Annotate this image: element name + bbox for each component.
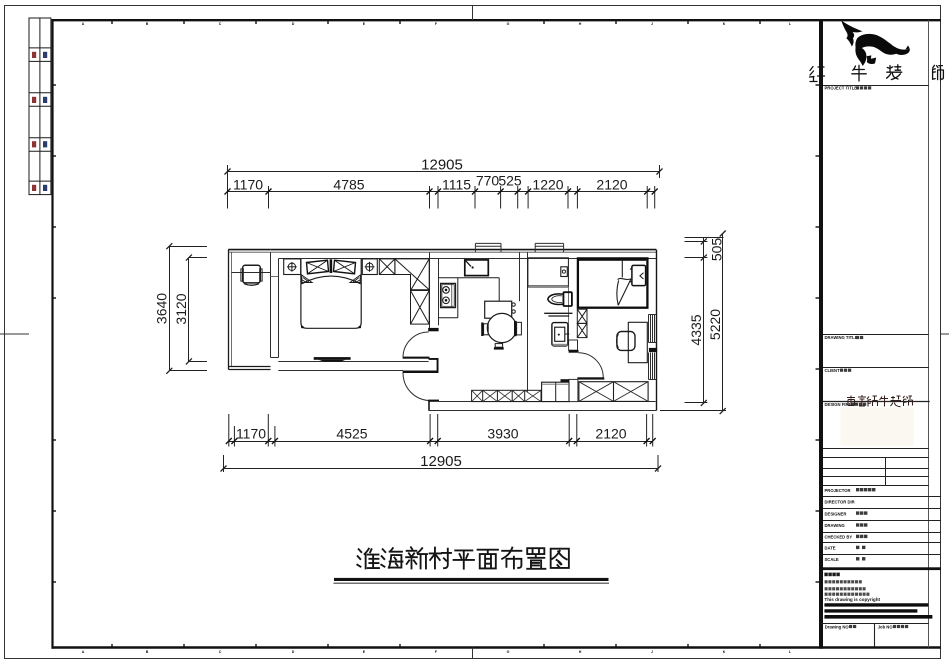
svg-text:2120: 2120 bbox=[596, 177, 627, 193]
svg-text:DESIGNER: DESIGNER bbox=[825, 511, 847, 516]
svg-text:1115: 1115 bbox=[442, 177, 471, 193]
svg-text:CLIENT: CLIENT bbox=[825, 368, 841, 373]
svg-text:DATE: DATE bbox=[825, 546, 836, 551]
svg-text:DIRECTOR DIR: DIRECTOR DIR bbox=[825, 499, 855, 504]
svg-text:2120: 2120 bbox=[595, 426, 626, 442]
svg-text:4785: 4785 bbox=[333, 177, 364, 193]
svg-text:DRAWING: DRAWING bbox=[825, 523, 845, 528]
svg-text:SCALE: SCALE bbox=[825, 557, 839, 562]
svg-text:C: C bbox=[219, 650, 222, 654]
svg-text:K: K bbox=[723, 650, 726, 654]
svg-text:H: H bbox=[579, 22, 582, 26]
svg-text:3930: 3930 bbox=[487, 426, 518, 442]
svg-text:H: H bbox=[579, 650, 582, 654]
svg-text:5220: 5220 bbox=[707, 309, 723, 340]
svg-text:525: 525 bbox=[498, 173, 522, 189]
svg-text:3120: 3120 bbox=[173, 293, 189, 324]
svg-text:A: A bbox=[82, 650, 85, 654]
svg-text:CHECKED BY: CHECKED BY bbox=[825, 535, 853, 540]
svg-text:Job NO: Job NO bbox=[878, 624, 894, 629]
svg-text:G: G bbox=[507, 650, 510, 654]
svg-text:1220: 1220 bbox=[532, 177, 563, 193]
svg-text:This drawing is copyright: This drawing is copyright bbox=[824, 597, 880, 602]
svg-text:PROJECTOR: PROJECTOR bbox=[825, 488, 851, 493]
svg-text:Drawing NO: Drawing NO bbox=[825, 624, 850, 629]
svg-text:B: B bbox=[146, 22, 149, 26]
svg-text:B: B bbox=[146, 650, 149, 654]
svg-text:DRAWING TITLE: DRAWING TITLE bbox=[825, 335, 858, 340]
svg-text:12905: 12905 bbox=[420, 453, 462, 470]
svg-text:C: C bbox=[219, 22, 222, 26]
svg-text:4525: 4525 bbox=[336, 426, 367, 442]
svg-text:12905: 12905 bbox=[421, 157, 463, 174]
svg-text:J: J bbox=[651, 22, 653, 26]
svg-text:4335: 4335 bbox=[688, 314, 704, 345]
svg-text:3640: 3640 bbox=[154, 293, 170, 324]
svg-text:K: K bbox=[723, 22, 726, 26]
svg-text:PROJECT TITLE: PROJECT TITLE bbox=[825, 86, 858, 91]
svg-text:1170: 1170 bbox=[236, 426, 266, 442]
svg-text:J: J bbox=[651, 650, 653, 654]
svg-text:770: 770 bbox=[476, 173, 500, 189]
svg-text:D: D bbox=[292, 650, 295, 654]
svg-text:G: G bbox=[507, 22, 510, 26]
svg-text:A: A bbox=[82, 22, 85, 26]
svg-text:D: D bbox=[292, 22, 295, 26]
svg-text:1170: 1170 bbox=[233, 177, 263, 193]
